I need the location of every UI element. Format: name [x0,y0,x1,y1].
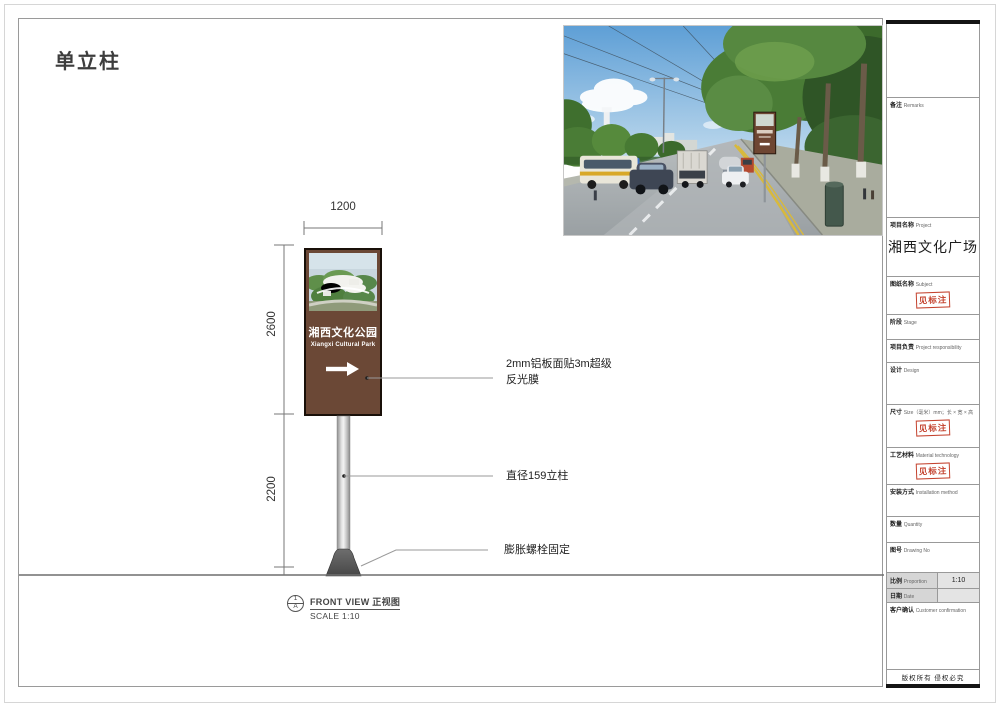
row-material: 工艺材料 Material technology 见标注 [887,448,979,485]
view-reference-symbol: 1 A [287,595,304,612]
annotation-anchor: 膨胀螺栓固定 [504,542,570,558]
photo-sign [754,112,776,154]
see-annotation-stamp: 见标注 [916,419,951,436]
see-annotation-stamp: 见标注 [916,462,951,479]
row-quantity: 数量 Quantity [887,517,979,543]
row-date: 日期 Date [887,589,979,603]
see-annotation-stamp: 见标注 [916,291,951,308]
title-block: 备注 Remarks 项目名称 Project 湘西文化广场 图纸名称 Subj… [886,20,980,688]
view-title-group: 1 A FRONT VIEW 正视图 SCALE 1:10 [287,595,400,621]
site-photo [563,25,883,236]
dimension-upper-height-label: 2600 [266,302,278,346]
row-drawing-no: 图号 Drawing No [887,543,979,573]
title-block-bottom-bar [886,684,980,688]
row-size: 尺寸 Size（毫米）mm；长 × 宽 × 高 见标注 [887,405,979,448]
row-design: 设计 Design [887,363,979,405]
row-responsibility: 项目负责 Project responsibility [887,340,979,363]
dimension-lower-height-label: 2200 [266,467,278,511]
signboard-subtitle: Xiangxi Cultural Park [306,342,380,348]
copyright-note: 版权所有 侵权必究 [887,670,979,684]
row-project: 项目名称 Project 湘西文化广场 [887,218,979,277]
row-stage: 阶段 Stage [887,315,979,340]
project-name-value: 湘西文化广场 [887,237,979,257]
right-arrow-icon [326,361,360,377]
signboard: 湘西文化公园 Xiangxi Cultural Park [304,248,382,416]
signboard-picture [309,253,377,311]
annotation-panel-material: 2mm铝板面贴3m超级 反光膜 [506,356,612,388]
date-value [937,589,979,602]
dimension-width-label: 1200 [304,201,382,213]
row-subject: 图纸名称 Subject 见标注 [887,277,979,315]
row-proportion: 比例 Proportion 1:10 [887,573,979,589]
drawing-frame: 单立柱 [18,18,883,687]
view-title: FRONT VIEW 正视图 [310,595,400,610]
signboard-title: 湘西文化公园 [306,324,380,340]
proportion-value: 1:10 [937,573,979,588]
row-installation: 安装方式 Installation method [887,485,979,517]
street-scene-image [564,26,882,235]
title-block-empty-box [887,24,979,98]
view-sheet: A [288,604,303,611]
row-confirmation: 客户确认 Customer confirmation [887,603,979,670]
page-title: 单立柱 [55,45,121,74]
row-remarks: 备注 Remarks [887,98,979,218]
annotation-pole: 直径159立柱 [506,468,568,484]
view-scale: SCALE 1:10 [310,611,400,621]
